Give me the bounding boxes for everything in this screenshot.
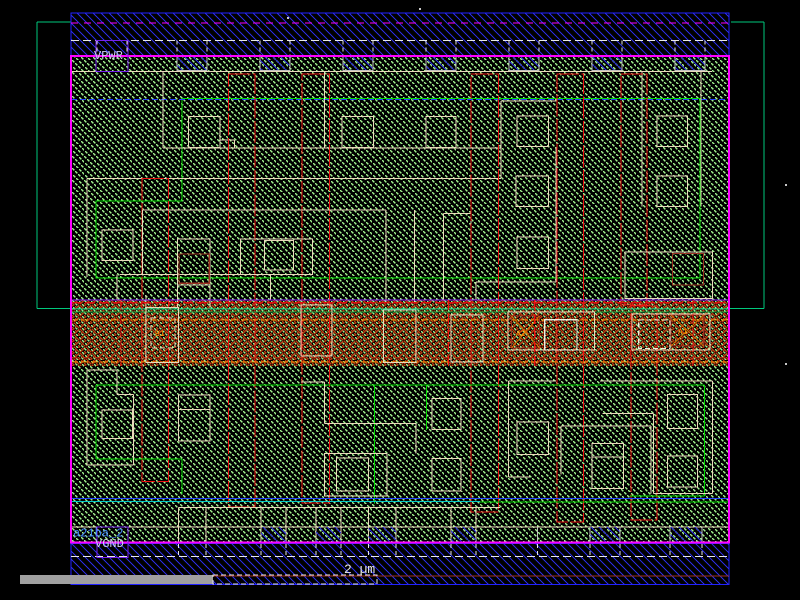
svg-text:2 µm: 2 µm bbox=[344, 562, 375, 577]
svg-text:A1: A1 bbox=[678, 328, 688, 337]
svg-text:B1: B1 bbox=[155, 330, 165, 339]
svg-text:A2: A2 bbox=[516, 330, 526, 339]
svg-text:VGND: VGND bbox=[95, 537, 124, 551]
svg-text:VPWR: VPWR bbox=[94, 49, 123, 63]
